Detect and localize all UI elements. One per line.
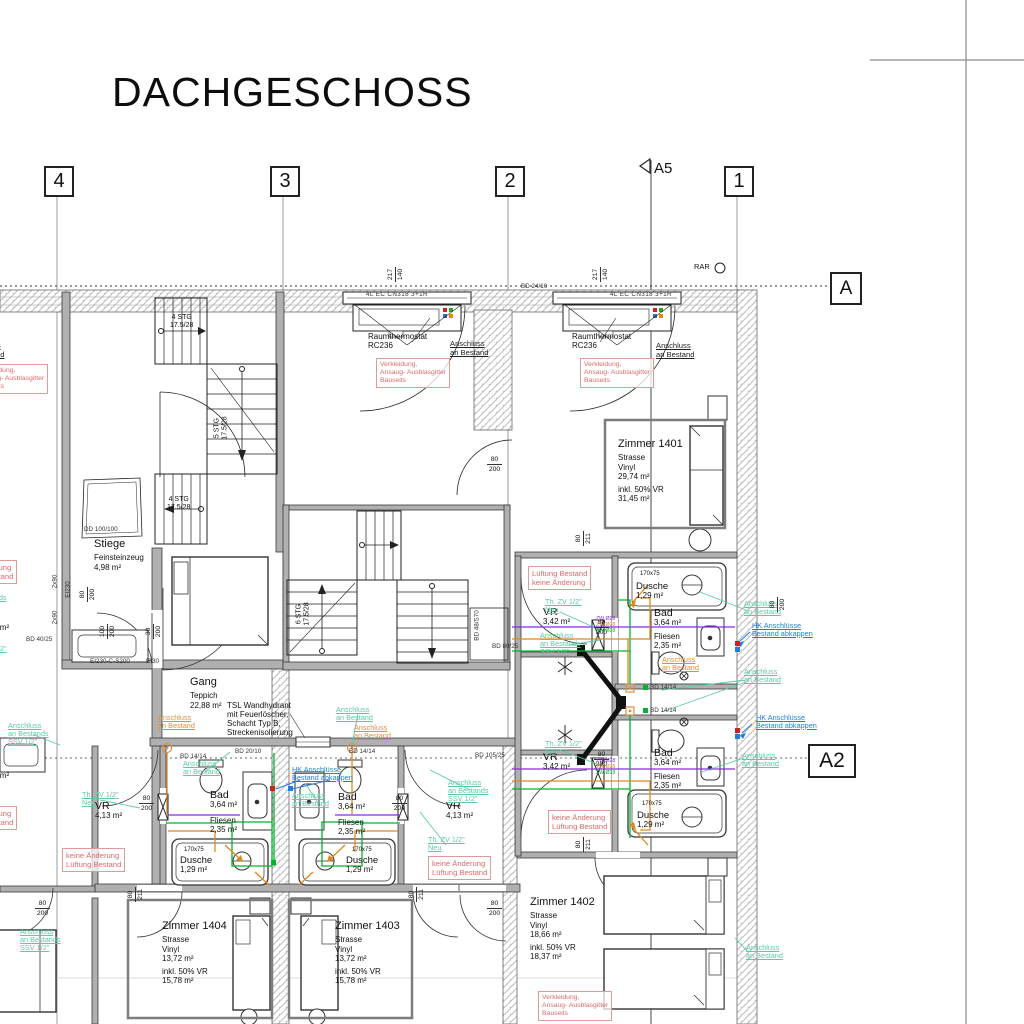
dim-2x90-b: 2x90	[51, 611, 58, 625]
room-label-stiege: StiegeFeinsteinzeug4,98 m²	[94, 538, 144, 572]
section-marker-a5: A5	[654, 164, 672, 173]
rar-symbol-icon	[715, 263, 725, 273]
bad-label-b: Bad3,64 m²	[338, 793, 365, 811]
dusche-size-c: 170x75	[640, 570, 660, 579]
room-label-zimmer-1402: Zimmer 1402StrasseVinyl18,66 m²inkl. 50%…	[530, 896, 595, 962]
anschluss-orange-3: Anschlussan Bestand	[662, 656, 699, 672]
anschluss-note-black-3: Anschlussan Bestand	[0, 342, 4, 359]
bd-80-25: BD 80/25	[492, 643, 518, 650]
zw-tag-6: ZW Ø28	[596, 771, 615, 777]
vr-label-413-b: VR4,13 m²	[446, 802, 473, 820]
dim-80-211-a: 80211	[127, 887, 144, 902]
dusche-label-c: Dusche1,29 m²	[636, 582, 668, 600]
section-marker-a-label: A	[840, 278, 853, 300]
bd-48-s70: BD 48/S70	[474, 610, 481, 640]
dim-2x90-a: 2x90	[51, 575, 58, 589]
thzv-teal-1: Th. ZV 1/2"Neu	[545, 598, 582, 614]
page-title: DACHGESCHOSS	[112, 88, 473, 97]
dd-label: DD 100/100	[84, 526, 118, 533]
anschluss-note-black-2: Anschlussan Bestand	[656, 342, 694, 359]
grid-marker-2: 2	[495, 166, 525, 197]
stair-label-5stg: 5 STG17.5/28	[214, 416, 230, 439]
ssv-teal-5: Anschlussan BestandsSSV 1/2"	[0, 586, 7, 610]
anschluss-teal-5: Anschlussan Bestand	[744, 668, 781, 684]
note-verkleidung-2: Verkleidung,Ansaug- AusblasgitterBauseit…	[580, 358, 654, 388]
dim-217-140-a: 217140	[387, 267, 404, 282]
dim-80-200-b: 80200	[35, 900, 50, 917]
convector-label-1: 4L EC CN318 3+1R	[366, 291, 428, 298]
dim-80-211-b: 80211	[408, 887, 425, 902]
bad-label-a: Bad3,64 m²	[210, 791, 237, 809]
thzv-teal-5: Th. ZV 1/2"Neu	[0, 645, 7, 661]
grid-marker-1-label: 1	[733, 170, 744, 193]
dim-217-140-b: 217140	[592, 267, 609, 282]
dusche-size-a: 170x75	[184, 846, 204, 855]
ei230-rot: EI230	[65, 581, 72, 597]
anschluss-teal-3: Anschlussan Bestand	[336, 706, 373, 722]
bd-14-14-a: BD 14/14	[180, 753, 206, 760]
bad-label-d: Bad3,64 m²	[654, 749, 681, 767]
thzv-teal-4: Th. ZV 1/2"Neu	[82, 791, 119, 807]
dim-80-211-d: 80211	[575, 531, 592, 546]
anschluss-teal-6: Anschlussan Bestand	[742, 752, 779, 768]
thzv-teal-2: Th. ZV 1/2"Neu	[545, 740, 582, 756]
page-frame	[870, 0, 1024, 1024]
bd-20-10: BD 20/10	[235, 748, 261, 755]
ssv-teal-1: Anschlussan BestandsSSV 1/2"	[448, 779, 489, 803]
anschluss-orange-1: Anschlussan Bestand	[158, 714, 195, 730]
anschluss-teal-1: Anschlussan Bestand	[183, 760, 220, 776]
floor-plan-drawing	[0, 0, 1024, 1024]
floor-plan-page: DACHGESCHOSS 4 3 2 1 A5 A A2 RAR 4L EC C…	[0, 0, 1024, 1024]
dusche-size-b: 170x75	[352, 846, 372, 855]
bd-14-14-d: BD 14/14	[650, 707, 676, 714]
section-marker-a2-label: A2	[819, 749, 845, 773]
rar-label: RAR	[694, 262, 710, 271]
fliesen-label-b: Fliesen2,35 m²	[338, 818, 365, 836]
tsl-note: TSL Wandhydrantmit Feuerlöscher,Schacht …	[227, 701, 293, 737]
anschluss-teal-7: Anschlussan Bestand	[746, 944, 783, 960]
dusche-label-d: Dusche1,29 m²	[637, 811, 669, 829]
room-label-zimmer-1401: Zimmer 1401StrasseVinyl29,74 m²inkl. 50%…	[618, 438, 683, 504]
bd-24-10: BD 24/10	[521, 283, 547, 290]
bad-label-c: Bad3,64 m²	[654, 609, 681, 627]
dusche-size-d: 170x75	[642, 800, 662, 809]
dim-80-200-rot-a: 80200	[79, 587, 96, 602]
dim-80-200-rot-b: 80200	[769, 597, 786, 612]
room-label-gang: GangTeppich22,88 m²	[190, 676, 222, 710]
grid-marker-2-label: 2	[504, 170, 515, 193]
room-label-zimmer-1403: Zimmer 1403StrasseVinyl13,72 m²inkl. 50%…	[335, 920, 400, 986]
zw-tag-3: ZW Ø28	[596, 629, 615, 635]
a5-arrow-icon	[640, 159, 650, 173]
note-lueftung-top: Lüftung Bestandkeine Änderung	[528, 566, 591, 590]
convector-label-2: 4L EC CN318 3+1R	[610, 291, 672, 298]
ssv-teal-2: Anschlussan BestandsSSV 1/2"	[540, 632, 581, 656]
note-keine-aenderung-2: keine ÄnderungLüftung Bestand	[428, 856, 491, 880]
dim-80-211-c: 80211	[575, 837, 592, 852]
section-marker-a: A	[830, 272, 862, 305]
fliesen-label-a: Fliesen2,35 m²	[210, 816, 237, 834]
grid-marker-3-label: 3	[279, 170, 290, 193]
dusche-label-a: Dusche1,29 m²	[180, 856, 212, 874]
fliesen-label-c: Fliesen2,35 m²	[654, 632, 681, 650]
thermostat-label-1: RaumthermostatRC236	[368, 332, 427, 350]
ei230-c-s200: EI230-C-S200	[90, 658, 130, 665]
bd-105-25: BD 105/25	[475, 752, 505, 759]
grid-marker-1: 1	[724, 166, 754, 197]
fliesen-label-d: Fliesen2,35 m²	[654, 772, 681, 790]
dusche-label-b: Dusche1,29 m²	[346, 856, 378, 874]
thermostat-label-2: RaumthermostatRC236	[572, 332, 631, 350]
vr-label-447-a: VR4,47 m²	[0, 614, 9, 632]
hk-note-2: HK AnschlüsseBestand abkappen	[752, 622, 813, 638]
note-keine-aenderung-4: keine ÄnderungLüftung Bestand	[0, 560, 17, 584]
dim-80-200-c: 80200	[487, 900, 502, 917]
dim-80-200-a: 80200	[487, 456, 502, 473]
ssv-teal-4: Anschlussan BestandsSSV 1/2"	[20, 928, 61, 952]
thzv-teal-3: Th. ZV 1/2"Neu	[428, 836, 465, 852]
grid-marker-3: 3	[270, 166, 300, 197]
note-verkleidung-1: Verkleidung,Ansaug- AusblasgitterBauseit…	[376, 358, 450, 388]
note-verkleidung-3: Verkleidung,Ansaug- AusblasgitterBauseit…	[0, 364, 48, 394]
grid-marker-4-label: 4	[53, 170, 64, 193]
ssv-teal-3: Anschlussan BestandsSSV 1/2"	[8, 722, 49, 746]
vr-label-447-b: VR4,47 m²	[0, 762, 9, 780]
anschluss-orange-2: Anschlussan Bestand	[354, 724, 391, 740]
dim-30-200: 30200	[145, 624, 162, 639]
grid-marker-4: 4	[44, 166, 74, 197]
hk-note-3: HK AnschlüsseBestand abkappen	[756, 714, 817, 730]
stair-label-4stg-top: 4 STG17.5/28	[170, 314, 193, 330]
ei30: EI30	[146, 658, 159, 665]
note-verkleidung-4: Verkleidung,Ansaug- AusblasgitterBauseit…	[538, 991, 612, 1021]
stair-label-4stg-bottom: 4 STG17.5/28	[167, 496, 190, 512]
note-keine-aenderung-5: keine ÄnderungLüftung Bestand	[0, 806, 17, 830]
anschluss-note-black-1: Anschlussan Bestand	[450, 340, 488, 357]
bd-40-25: BD 40/25	[26, 636, 52, 643]
hk-note-1: HK AnschlüsseBestand abkappen	[292, 766, 353, 782]
bd-14-14-b: BD 14/14	[349, 748, 375, 755]
section-marker-a2: A2	[808, 744, 856, 778]
dim-80-200-d: 80200	[392, 795, 407, 812]
dim-80-200-e: 80200	[139, 795, 154, 812]
bd-14-14-c: BD 14/14	[650, 684, 676, 691]
note-keine-aenderung-1: keine ÄnderungLüftung Bestand	[548, 810, 611, 834]
room-label-zimmer-1404: Zimmer 1404StrasseVinyl13,72 m²inkl. 50%…	[162, 920, 227, 986]
note-keine-aenderung-3: keine ÄnderungLüftung Bestand	[62, 848, 125, 872]
anschluss-teal-2: Anschlussan Bestand	[292, 792, 329, 808]
stair-label-6stg: 6 STG17.5/28	[296, 602, 312, 625]
dim-100-200: 100200	[99, 624, 116, 639]
